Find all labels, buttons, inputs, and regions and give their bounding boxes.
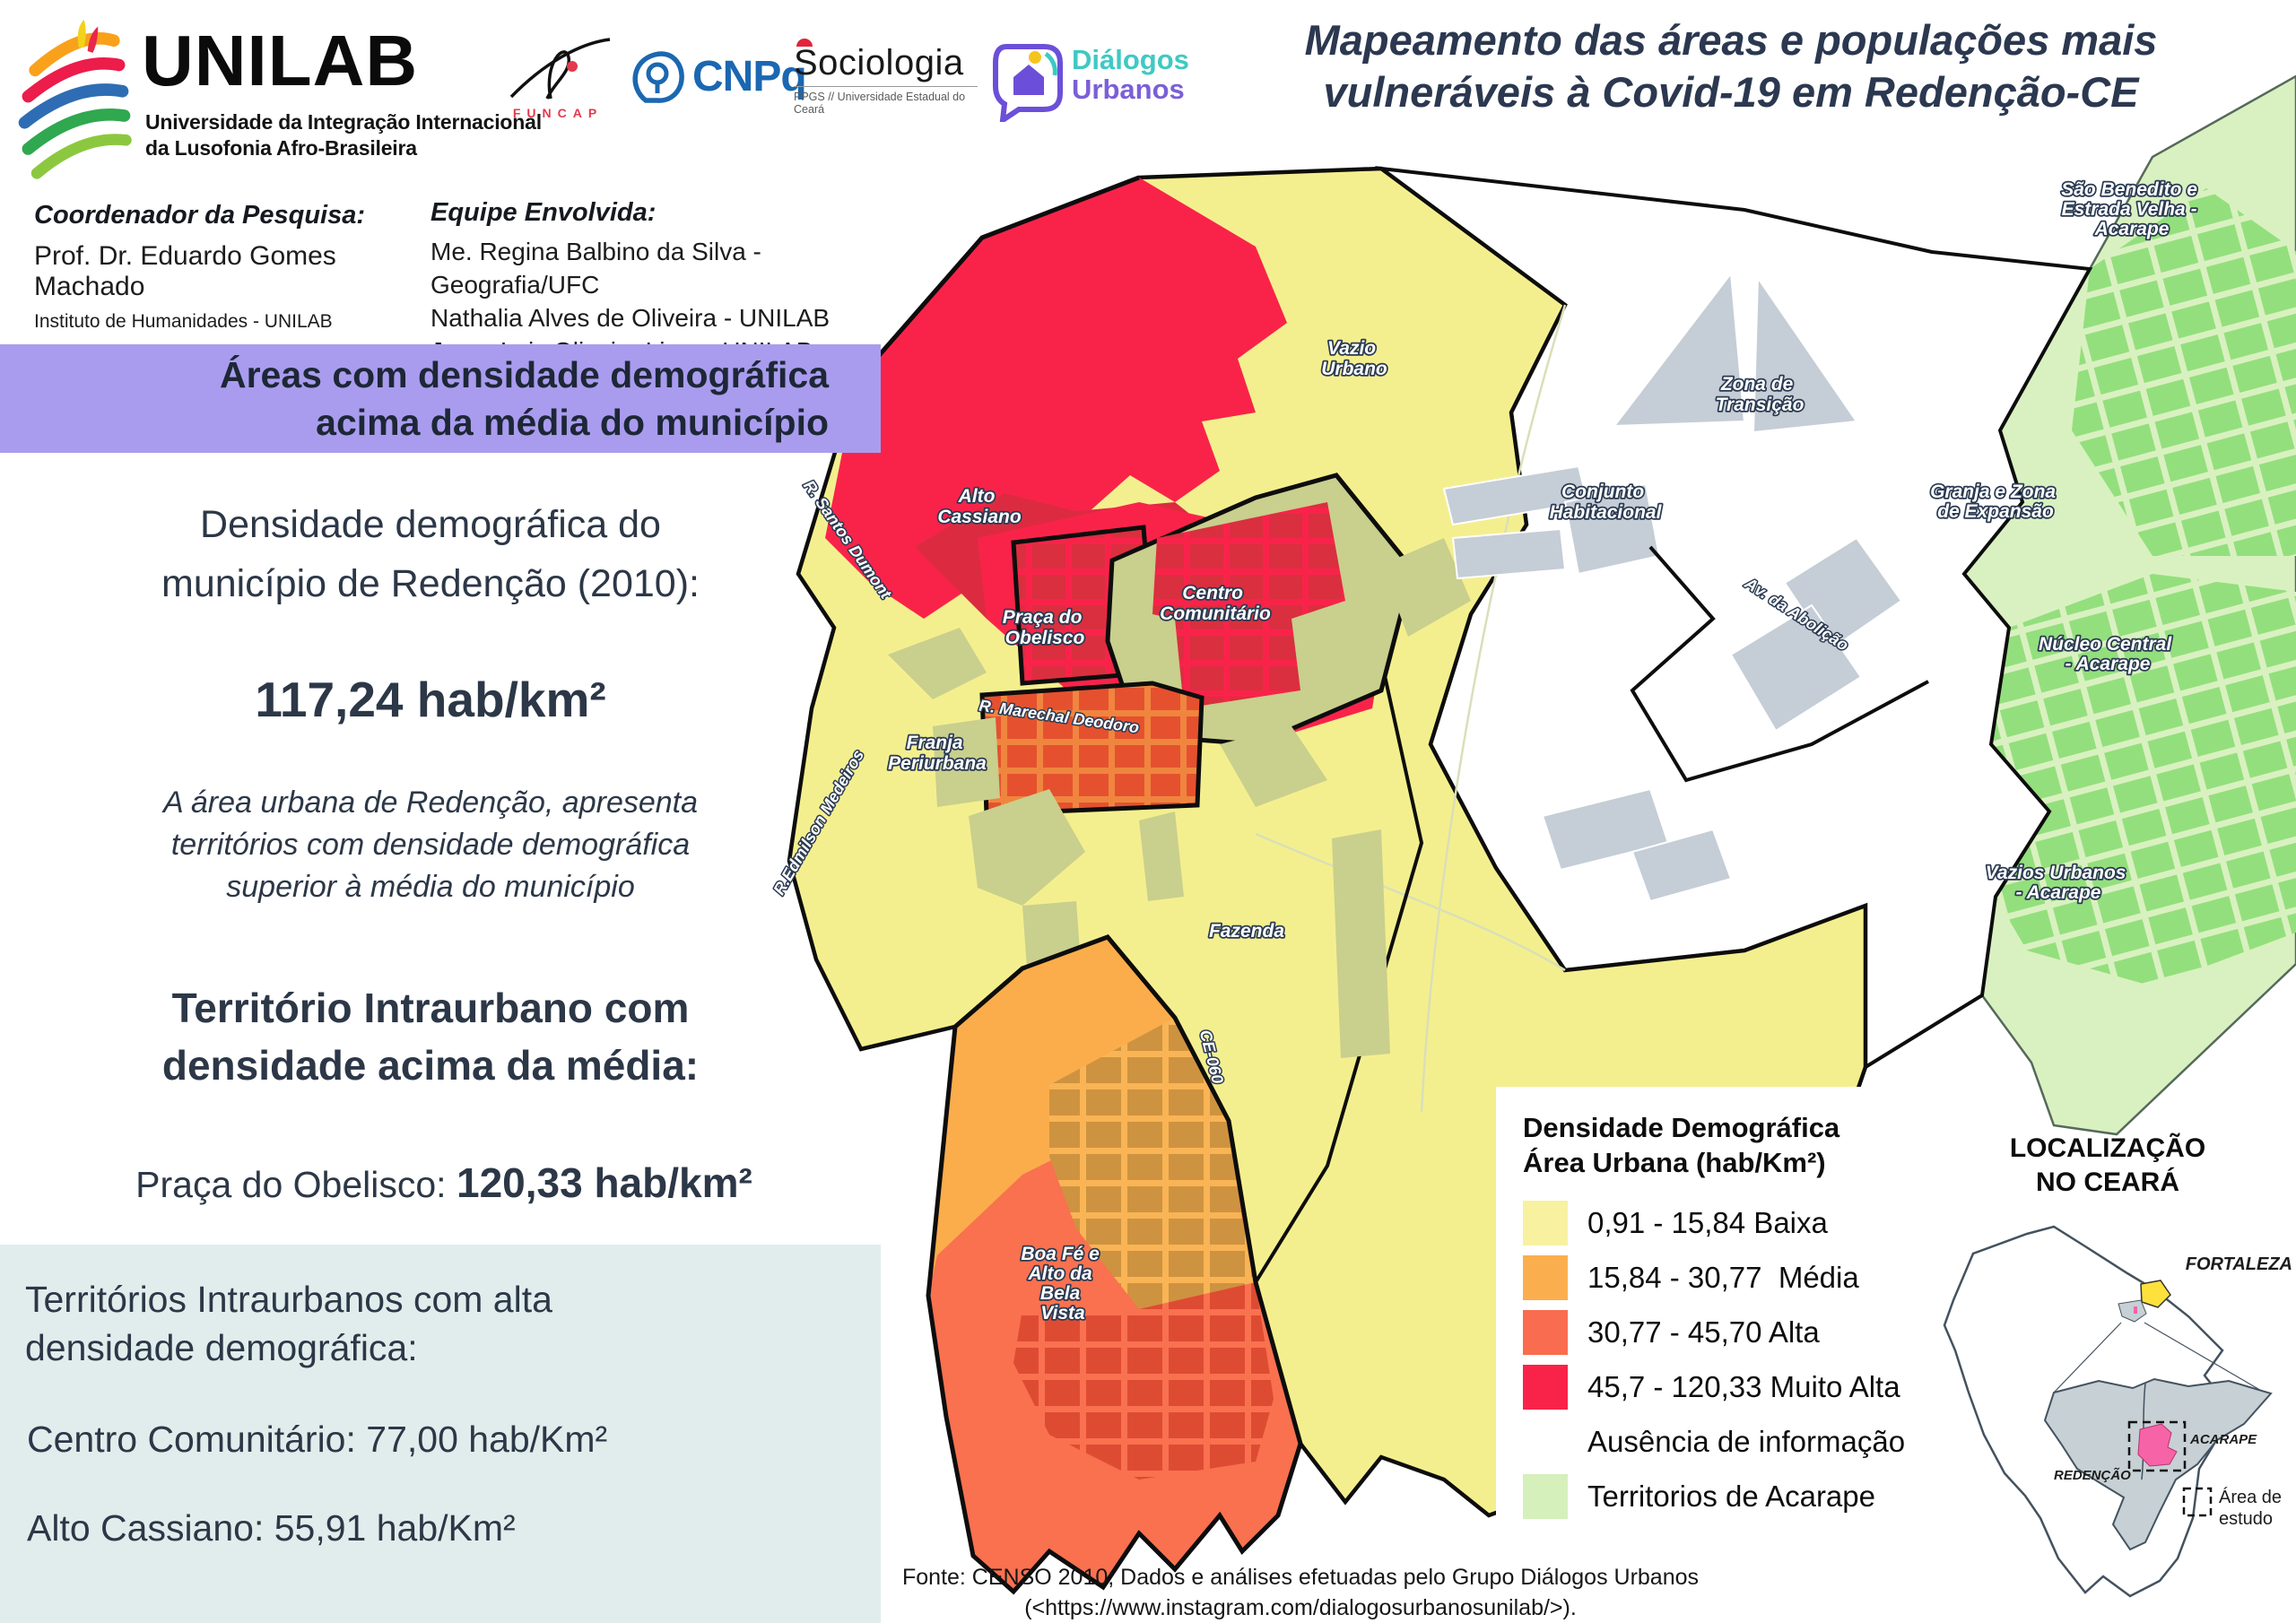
legend-row-muito-alta: 45,7 - 120,33 Muito Alta bbox=[1523, 1364, 1959, 1410]
source-note-line2: (<https://www.instagram.com/dialogosurba… bbox=[901, 1593, 1700, 1623]
map-label-praca-obelisco: Praça do Obelisco bbox=[1003, 607, 1088, 648]
inset-label-fortaleza: FORTALEZA bbox=[2186, 1254, 2292, 1274]
banner-line1: Áreas com densidade demográfica bbox=[0, 352, 881, 399]
legend-row-acarape: Territorios de Acarape bbox=[1523, 1473, 1959, 1520]
coordinator-label: Coordenador da Pesquisa: bbox=[34, 201, 420, 230]
density-value: 117,24 hab/km² bbox=[27, 671, 834, 728]
unilab-subtitle-line1: Universidade da Integração Internacional bbox=[145, 109, 542, 135]
legend-row-alta: 30,77 - 45,70 Alta bbox=[1523, 1309, 1959, 1356]
unilab-subtitle: Universidade da Integração Internacional… bbox=[145, 109, 542, 161]
location-inset: LOCALIZAÇÃO NO CEARÁ FORTALEZA REDENÇÃO … bbox=[1919, 1132, 2296, 1623]
legend-title-line2: Área Urbana (hab/Km²) bbox=[1523, 1145, 1959, 1180]
mini-study-area bbox=[2134, 1306, 2137, 1314]
coordinator-institute: Instituto de Humanidades - UNILAB bbox=[34, 311, 420, 333]
high-density-box: Territórios Intraurbanos com alta densid… bbox=[0, 1245, 881, 1623]
high-density-heading-line1: Territórios Intraurbanos com alta bbox=[25, 1275, 814, 1324]
legend-row-ausencia: Ausência de informação bbox=[1523, 1419, 1959, 1465]
legend-box: Densidade Demográfica Área Urbana (hab/K… bbox=[1496, 1087, 1959, 1569]
density-heading-line2: município de Redenção (2010): bbox=[27, 554, 834, 613]
intro-paragraph-line2: territórios com densidade demográfica bbox=[54, 824, 807, 866]
legend-label-baixa: 0,91 - 15,84 Baixa bbox=[1587, 1206, 1828, 1240]
territory-heading-line2: densidade acima da média: bbox=[27, 1037, 834, 1094]
cnpq-head-icon bbox=[628, 47, 687, 108]
legend-label-ausencia: Ausência de informação bbox=[1587, 1425, 1905, 1459]
territory-heading: Território Intraurbano com densidade aci… bbox=[27, 979, 834, 1094]
coordinator-name: Prof. Dr. Eduardo Gomes Machado bbox=[34, 241, 420, 302]
high-density-heading-line2: densidade demográfica: bbox=[25, 1324, 814, 1372]
purple-banner: Áreas com densidade demográfica acima da… bbox=[0, 344, 881, 453]
intro-paragraph-line1: A área urbana de Redenção, apresenta bbox=[54, 782, 807, 824]
density-heading: Densidade demográfica do município de Re… bbox=[27, 495, 834, 613]
page-title-line1: Mapeamento das áreas e populações mais bbox=[1175, 14, 2287, 66]
obelisco-label: Praça do Obelisco: bbox=[135, 1164, 446, 1205]
unilab-wordmark: UNILAB bbox=[142, 25, 418, 97]
legend-label-muito-alta: 45,7 - 120,33 Muito Alta bbox=[1587, 1370, 1900, 1404]
map-label-granja: Granja e Zona de Expansão bbox=[1930, 482, 2061, 522]
density-heading-line1: Densidade demográfica do bbox=[27, 495, 834, 554]
source-note-line1: Fonte: CENSO 2010; Dados e análises efet… bbox=[901, 1562, 1700, 1593]
legend-title: Densidade Demográfica Área Urbana (hab/K… bbox=[1523, 1110, 1959, 1180]
legend-label-acarape: Territorios de Acarape bbox=[1587, 1480, 1875, 1514]
territory-heading-line1: Território Intraurbano com bbox=[27, 979, 834, 1037]
legend-swatch-alta bbox=[1523, 1310, 1568, 1355]
sociologia-red-accent bbox=[796, 39, 813, 47]
alto-cassiano-stat: Alto Cassiano: 55,91 hab/Km² bbox=[27, 1507, 881, 1549]
intro-paragraph-line3: superior à média do município bbox=[54, 866, 807, 908]
inset-title-line2: NO CEARÁ bbox=[1919, 1166, 2296, 1200]
legend-label-alta: 30,77 - 45,70 Alta bbox=[1587, 1315, 1820, 1350]
legend-swatch-ausencia bbox=[1523, 1419, 1568, 1464]
funcap-icon bbox=[495, 27, 621, 108]
inset-title-line1: LOCALIZAÇÃO bbox=[1919, 1132, 2296, 1166]
inset-label-acarape: ACARAPE bbox=[2189, 1432, 2257, 1447]
map-label-vazio-urbano: Vazio Urbano bbox=[1321, 338, 1387, 379]
centro-comunitario-stat: Centro Comunitário: 77,00 hab/Km² bbox=[27, 1419, 881, 1461]
inset-label-area-line2: estudo bbox=[2219, 1509, 2273, 1529]
legend-label-media: 15,84 - 30,77 Média bbox=[1587, 1261, 1859, 1295]
inset-label-redencao: REDENÇÃO bbox=[2054, 1467, 2131, 1483]
legend-swatch-baixa bbox=[1523, 1201, 1568, 1245]
coordinator-block: Coordenador da Pesquisa: Prof. Dr. Eduar… bbox=[34, 201, 420, 333]
banner-line2: acima da média do município bbox=[0, 399, 881, 447]
legend-swatch-media bbox=[1523, 1255, 1568, 1300]
legend-row-baixa: 0,91 - 15,84 Baixa bbox=[1523, 1200, 1959, 1246]
legend-swatch-muito-alta bbox=[1523, 1365, 1568, 1410]
map-label-conjunto-habitacional: Conjunto Habitacional bbox=[1550, 482, 1663, 523]
map-label-zona-transicao: Zona de Transição bbox=[1716, 374, 1805, 415]
high-density-heading: Territórios Intraurbanos com alta densid… bbox=[25, 1275, 814, 1372]
inset-label-area-line1: Área de bbox=[2219, 1487, 2282, 1507]
unilab-swoosh-icon bbox=[7, 16, 142, 182]
page-title-line2: vulneráveis à Covid-19 em Redenção-CE bbox=[1175, 66, 2287, 118]
ceara-inset-map: FORTALEZA REDENÇÃO ACARAPE Área de estud… bbox=[1919, 1200, 2296, 1612]
page-title: Mapeamento das áreas e populações mais v… bbox=[1175, 14, 2287, 118]
obelisco-value: 120,33 hab/km² bbox=[457, 1159, 752, 1206]
funcap-wordmark: FUNCAP bbox=[495, 106, 621, 120]
obelisco-stat: Praça do Obelisco: 120,33 hab/km² bbox=[27, 1159, 861, 1207]
legend-swatch-acarape bbox=[1523, 1474, 1568, 1519]
intro-paragraph: A área urbana de Redenção, apresenta ter… bbox=[54, 782, 807, 908]
map-label-fazenda: Fazenda bbox=[1209, 921, 1284, 942]
source-note: Fonte: CENSO 2010; Dados e análises efet… bbox=[901, 1562, 1700, 1623]
inset-title: LOCALIZAÇÃO NO CEARÁ bbox=[1919, 1132, 2296, 1200]
unilab-subtitle-line2: da Lusofonia Afro-Brasileira bbox=[145, 135, 542, 161]
legend-title-line1: Densidade Demográfica bbox=[1523, 1110, 1959, 1145]
legend-row-media: 15,84 - 30,77 Média bbox=[1523, 1254, 1959, 1301]
